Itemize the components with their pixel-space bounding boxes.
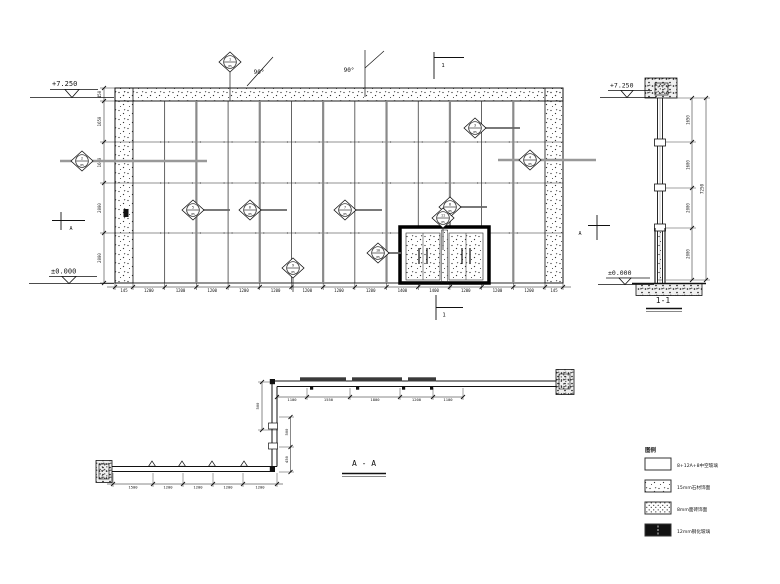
legend-label: 15mm石材饰面 [677, 484, 711, 491]
joint-dot [485, 182, 486, 183]
joint-dot [517, 141, 518, 142]
joint-dot [319, 182, 320, 183]
joint-dot [327, 232, 328, 233]
joint-dot [223, 182, 224, 183]
wall-joint [269, 443, 278, 449]
joint-dot [382, 182, 383, 183]
joint-dot [350, 182, 351, 183]
wall-joint [269, 423, 278, 429]
section-flag-a-right: A [578, 215, 610, 240]
dim-label: 1650 [97, 116, 102, 126]
callout-sheet: 05 [228, 64, 232, 68]
joint-dot [509, 232, 510, 233]
dim-label: 1800 [370, 397, 380, 402]
mullion-clip [430, 387, 433, 390]
swatch-stone-dense [645, 502, 671, 514]
callout-sheet: 05 [376, 255, 380, 259]
dim-label: 1200 [207, 288, 217, 293]
entrance-door [400, 227, 489, 284]
joint-dot [231, 182, 232, 183]
callout-sheet: 05 [291, 270, 295, 274]
dim-label: 500 [255, 402, 260, 410]
legend-item: 12mm钢化玻璃 [645, 524, 711, 536]
dim-label: 1200 [223, 485, 233, 490]
joint-dot [422, 141, 423, 142]
joint-dot [358, 232, 359, 233]
plan-title: A - A [342, 459, 386, 477]
dim-label: 1200 [302, 288, 312, 293]
legend-title: 图例 [645, 446, 657, 454]
angle-leader-line [247, 57, 273, 86]
section-title: 1-1 [646, 296, 682, 312]
joint-dot [453, 182, 454, 183]
joint-dot [350, 232, 351, 233]
joint-dot [192, 232, 193, 233]
joint-dot [200, 182, 201, 183]
glazing-panel [300, 377, 346, 381]
joint-dot [223, 141, 224, 142]
joint-dot [382, 141, 383, 142]
callout-number: 9 [292, 264, 294, 268]
level-label: ±0.000 [608, 269, 632, 277]
dim-label: 1200 [524, 288, 534, 293]
callout-number: 5 [192, 206, 194, 210]
cad-drawing-canvas: 1451200120012001200120012001200120014001… [0, 0, 780, 584]
dim-label: 2000 [97, 253, 102, 263]
level-triangle-icon [62, 277, 76, 284]
left-column-hatch [115, 88, 133, 283]
flag-label: 1 [442, 313, 445, 319]
level-triangle-icon [621, 91, 633, 98]
joint-dot [263, 232, 264, 233]
joint-dot [168, 141, 169, 142]
callout-sheet: 05 [528, 162, 532, 166]
joint-dot [160, 182, 161, 183]
flag-label: A [69, 226, 72, 232]
dim-label: 2000 [686, 249, 691, 259]
dim-label: 1200 [163, 485, 173, 490]
section-top-detail [655, 83, 668, 95]
angle-label: 90° [344, 67, 355, 74]
dim-label: 1400 [429, 288, 439, 293]
mullion-clip [179, 461, 186, 466]
mullion-clip [356, 387, 359, 390]
joint-dot [445, 141, 446, 142]
joint-dot [414, 182, 415, 183]
joint-dot [168, 232, 169, 233]
view-title: 1-1 [656, 296, 671, 305]
joint-dot [358, 141, 359, 142]
callout-sheet: 05 [441, 220, 445, 224]
mullion-clip [209, 461, 216, 466]
plan-column-core [99, 464, 109, 479]
joint-dot [287, 182, 288, 183]
plan-column-core [559, 374, 570, 389]
level-triangle-icon [65, 90, 79, 98]
joint-dot [231, 232, 232, 233]
joint-dot [453, 141, 454, 142]
joint-dot [350, 141, 351, 142]
door-center-mullion [442, 230, 448, 283]
callout-number: 2 [81, 157, 83, 161]
dim-label: 1200 [461, 288, 471, 293]
callout-sheet: 05 [191, 212, 195, 216]
joint-dot [509, 182, 510, 183]
joint-dot [358, 182, 359, 183]
callout-sheet: 05 [80, 163, 84, 167]
dim-label: 1400 [398, 288, 408, 293]
joint-dot [517, 182, 518, 183]
joint-dot [231, 141, 232, 142]
joint-dot [485, 141, 486, 142]
section-dimensions: 16501600200020007250 [666, 96, 710, 282]
dim-label: 1200 [239, 288, 249, 293]
joint-dot [327, 141, 328, 142]
joint-dot [382, 232, 383, 233]
joint-dot [263, 141, 264, 142]
joint-dot [160, 232, 161, 233]
dim-label: 1200 [193, 485, 203, 490]
mullion-joint [655, 184, 666, 191]
mullion-joint [655, 224, 666, 231]
joint-dot [295, 141, 296, 142]
joint-dot [192, 141, 193, 142]
parapet-hatch-band [115, 88, 563, 101]
dim-label: 1500 [128, 485, 138, 490]
legend: 图例 8+12A+8中空玻璃 15mm石材饰面 8mm面砖饰面 12mm钢化玻璃 [645, 446, 718, 536]
glazing-panel [408, 377, 436, 381]
joint-dot [192, 182, 193, 183]
joint-dot [509, 141, 510, 142]
legend-label: 8mm面砖饰面 [677, 506, 708, 513]
elevation-dimensions: 1451200120012001200120012001200120014001… [97, 86, 571, 293]
swatch-insulated-glass [645, 458, 671, 470]
embed-detail-mark [124, 209, 129, 217]
door-section-hatch [658, 231, 663, 280]
callout-number: 11 [441, 214, 445, 218]
section-flag-1-top: 1 [434, 52, 464, 79]
joint-dot [287, 232, 288, 233]
flag-label: 1 [441, 63, 444, 69]
section-1-1-view: 16501600200020007250 +7.250 ±0.000 1-1 [598, 78, 710, 312]
callout-sheet: 05 [448, 209, 452, 213]
joint-dot [200, 232, 201, 233]
dim-label: 1200 [144, 288, 154, 293]
glazing-panel [352, 377, 402, 381]
dim-label: 1650 [686, 115, 691, 125]
dim-label: 1200 [271, 288, 281, 293]
callout-number: 10 [376, 249, 380, 253]
joint-dot [477, 141, 478, 142]
level-label: +7.250 [610, 82, 634, 90]
legend-label: 8+12A+8中空玻璃 [677, 462, 718, 469]
legend-item: 8+12A+8中空玻璃 [645, 458, 718, 470]
joint-dot [319, 232, 320, 233]
mullion-joint [655, 139, 666, 146]
callout-sheet: 05 [343, 212, 347, 216]
level-marker-bottom: ±0.000 [29, 268, 114, 284]
flag-label: A [578, 231, 581, 237]
dim-label: 1550 [324, 397, 334, 402]
dim-label: 1200 [366, 288, 376, 293]
joint-dot [255, 232, 256, 233]
joint-dot [263, 182, 264, 183]
plan-a-a-view: 1100155018001200110050050045015001200120… [96, 370, 574, 490]
joint-dot [255, 141, 256, 142]
dim-label: 450 [284, 455, 289, 463]
joint-dot [390, 141, 391, 142]
joint-dot [168, 182, 169, 183]
joint-dot [200, 141, 201, 142]
elevation-outline [115, 88, 563, 283]
dim-label: 2000 [97, 203, 102, 213]
angle-annotation-1: 90° [247, 57, 273, 86]
dim-label: 2000 [686, 203, 691, 213]
mullion-clip [402, 387, 405, 390]
dim-label: 1200 [176, 288, 186, 293]
joint-dot [327, 182, 328, 183]
level-label: ±0.000 [51, 268, 76, 276]
mullion-clip [149, 461, 156, 466]
joint-dot [255, 182, 256, 183]
drawing-svg: 1451200120012001200120012001200120014001… [0, 0, 780, 584]
dim-label: 1200 [334, 288, 344, 293]
dim-label: 1200 [493, 288, 503, 293]
callout-number: 6 [249, 206, 251, 210]
dim-label: 500 [284, 428, 289, 436]
joint-dot [287, 141, 288, 142]
level-label: +7.250 [52, 80, 77, 88]
mullion-clip [310, 387, 313, 390]
dim-label: 450 [97, 90, 102, 98]
overall-dim-label: 7250 [700, 183, 705, 194]
swatch-stone-sparse [645, 480, 671, 492]
legend-item: 8mm面砖饰面 [645, 502, 708, 514]
joint-dot [414, 141, 415, 142]
section-flag-1-bottom: 1 [436, 295, 463, 320]
callout-sheet: 05 [473, 130, 477, 134]
plan-clips-and-dims: 1100155018001200110050050045015001200120… [107, 380, 465, 490]
dim-label: 1100 [287, 397, 297, 402]
callout-number: 1 [229, 58, 231, 62]
joint-dot [295, 232, 296, 233]
joint-dot [319, 141, 320, 142]
joint-dot [445, 182, 446, 183]
legend-item: 15mm石材饰面 [645, 480, 711, 492]
callout-number: 4 [529, 156, 531, 160]
joint-dot [390, 182, 391, 183]
legend-label: 12mm钢化玻璃 [677, 528, 711, 535]
callout-number: 7 [344, 206, 346, 210]
level-triangle-icon [619, 278, 631, 285]
joint-dot [295, 182, 296, 183]
joint-dot [390, 232, 391, 233]
callout-number: 3 [474, 124, 476, 128]
joint-dot [422, 182, 423, 183]
callout-sheet: 05 [248, 212, 252, 216]
right-column-hatch [545, 88, 563, 283]
level-marker-bottom: ±0.000 [598, 269, 654, 285]
mullion-clip [241, 461, 248, 466]
dim-label: 145 [550, 288, 558, 293]
dim-label: 145 [120, 288, 128, 293]
elevation-view: 1451200120012001200120012001200120014001… [29, 50, 610, 320]
joint-dot [160, 141, 161, 142]
corner-joint [270, 379, 275, 384]
angle-leader-line [365, 51, 384, 68]
view-title: A - A [352, 459, 376, 468]
callout-number: 8 [449, 203, 451, 207]
ground-slab [636, 284, 702, 296]
dim-label: 1600 [686, 160, 691, 170]
dim-label: 1200 [255, 485, 265, 490]
dim-label: 1100 [443, 397, 453, 402]
dim-label: 1600 [97, 157, 102, 167]
dim-label: 1200 [412, 397, 422, 402]
joint-dot [517, 232, 518, 233]
joint-dot [477, 182, 478, 183]
joint-dot [223, 232, 224, 233]
